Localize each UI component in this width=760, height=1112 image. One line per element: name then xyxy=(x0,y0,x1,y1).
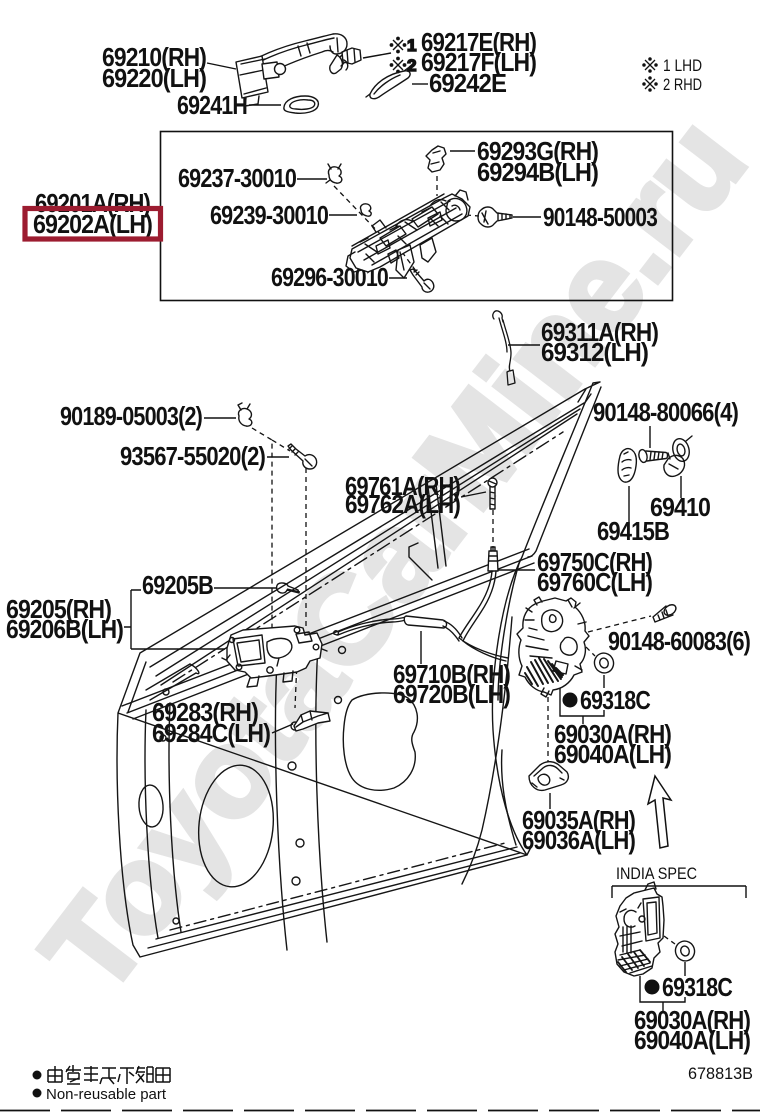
svg-text:90148-80066(4): 90148-80066(4) xyxy=(593,397,738,427)
svg-text:69239-30010: 69239-30010 xyxy=(210,200,328,230)
svg-text:678813B: 678813B xyxy=(688,1064,753,1083)
svg-text:69242E: 69242E xyxy=(429,68,507,98)
svg-text:2 RHD: 2 RHD xyxy=(663,75,702,94)
svg-text:69040A(LH): 69040A(LH) xyxy=(634,1025,750,1055)
svg-text:69220(LH): 69220(LH) xyxy=(102,63,206,93)
svg-text:69294B(LH): 69294B(LH) xyxy=(477,157,598,187)
svg-text:69036A(LH): 69036A(LH) xyxy=(522,825,635,855)
svg-text:69040A(LH): 69040A(LH) xyxy=(554,739,671,769)
svg-text:69206B(LH): 69206B(LH) xyxy=(6,614,123,644)
svg-text:INDIA SPEC: INDIA SPEC xyxy=(616,864,697,883)
svg-text:Non-reusable part: Non-reusable part xyxy=(46,1086,167,1103)
svg-text:69762A(LH): 69762A(LH) xyxy=(345,489,460,519)
svg-text:69241H: 69241H xyxy=(177,90,247,120)
svg-text:93567-55020(2): 93567-55020(2) xyxy=(120,441,265,471)
svg-text:69318C: 69318C xyxy=(580,685,651,715)
svg-text:69312(LH): 69312(LH) xyxy=(541,337,648,367)
svg-text:1: 1 xyxy=(407,36,416,55)
svg-text:69205B: 69205B xyxy=(142,570,213,600)
svg-text:1 LHD: 1 LHD xyxy=(663,56,702,75)
svg-text:69318C: 69318C xyxy=(662,972,733,1002)
svg-text:90148-50003: 90148-50003 xyxy=(543,202,657,232)
svg-text:90148-60083(6): 90148-60083(6) xyxy=(608,626,750,656)
svg-text:69237-30010: 69237-30010 xyxy=(178,163,296,193)
svg-text:69415B: 69415B xyxy=(597,516,669,546)
svg-text:69760C(LH): 69760C(LH) xyxy=(537,567,652,597)
svg-text:69202A(LH): 69202A(LH) xyxy=(33,209,152,239)
svg-text:90189-05003(2): 90189-05003(2) xyxy=(60,401,202,431)
